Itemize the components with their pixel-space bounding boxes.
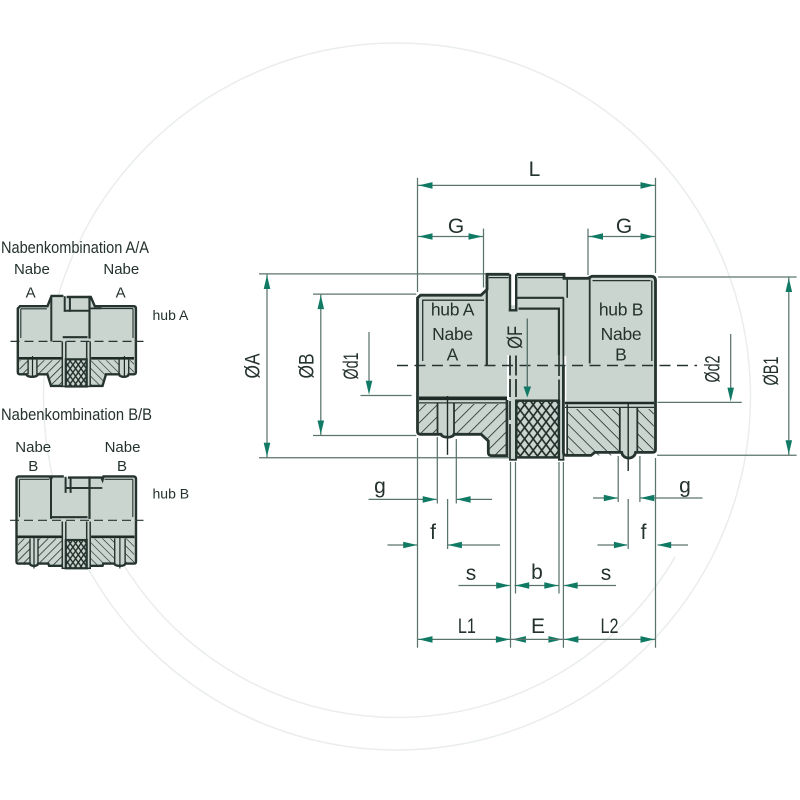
svg-text:Nabe: Nabe (15, 439, 51, 456)
svg-text:hub B: hub B (153, 486, 190, 502)
svg-text:hub B: hub B (599, 300, 643, 320)
svg-text:Nabe: Nabe (601, 324, 642, 344)
svg-text:A: A (447, 345, 459, 365)
svg-text:G: G (616, 215, 632, 238)
svg-text:ØF: ØF (504, 326, 527, 349)
svg-text:A: A (26, 285, 36, 302)
svg-text:G: G (448, 215, 464, 238)
svg-text:s: s (466, 562, 477, 585)
svg-text:f: f (430, 521, 436, 544)
svg-text:s: s (601, 562, 612, 585)
svg-text:L2: L2 (601, 615, 619, 638)
svg-text:Nabe: Nabe (103, 261, 139, 278)
svg-text:B: B (28, 458, 38, 475)
svg-text:hub A: hub A (153, 307, 189, 323)
svg-text:f: f (641, 521, 647, 544)
svg-text:b: b (531, 561, 543, 584)
svg-text:Nabe: Nabe (105, 439, 141, 456)
svg-text:L: L (529, 158, 541, 181)
svg-text:Nabenkombination B/B: Nabenkombination B/B (1, 405, 152, 424)
svg-text:ØB: ØB (296, 354, 319, 379)
svg-text:Ød1: Ød1 (340, 353, 363, 380)
svg-text:g: g (374, 475, 386, 498)
svg-text:Nabenkombination A/A: Nabenkombination A/A (1, 238, 150, 257)
svg-text:B: B (117, 458, 127, 475)
svg-text:Nabe: Nabe (432, 324, 473, 344)
svg-text:ØA: ØA (242, 354, 265, 379)
svg-text:Ød2: Ød2 (702, 356, 725, 383)
svg-text:g: g (679, 475, 691, 498)
svg-text:L1: L1 (458, 615, 476, 638)
svg-text:ØB1: ØB1 (760, 357, 783, 386)
svg-text:E: E (531, 615, 545, 638)
svg-text:hub A: hub A (431, 300, 475, 320)
svg-text:A: A (116, 285, 126, 302)
svg-text:B: B (615, 345, 627, 365)
svg-text:Nabe: Nabe (14, 261, 50, 278)
